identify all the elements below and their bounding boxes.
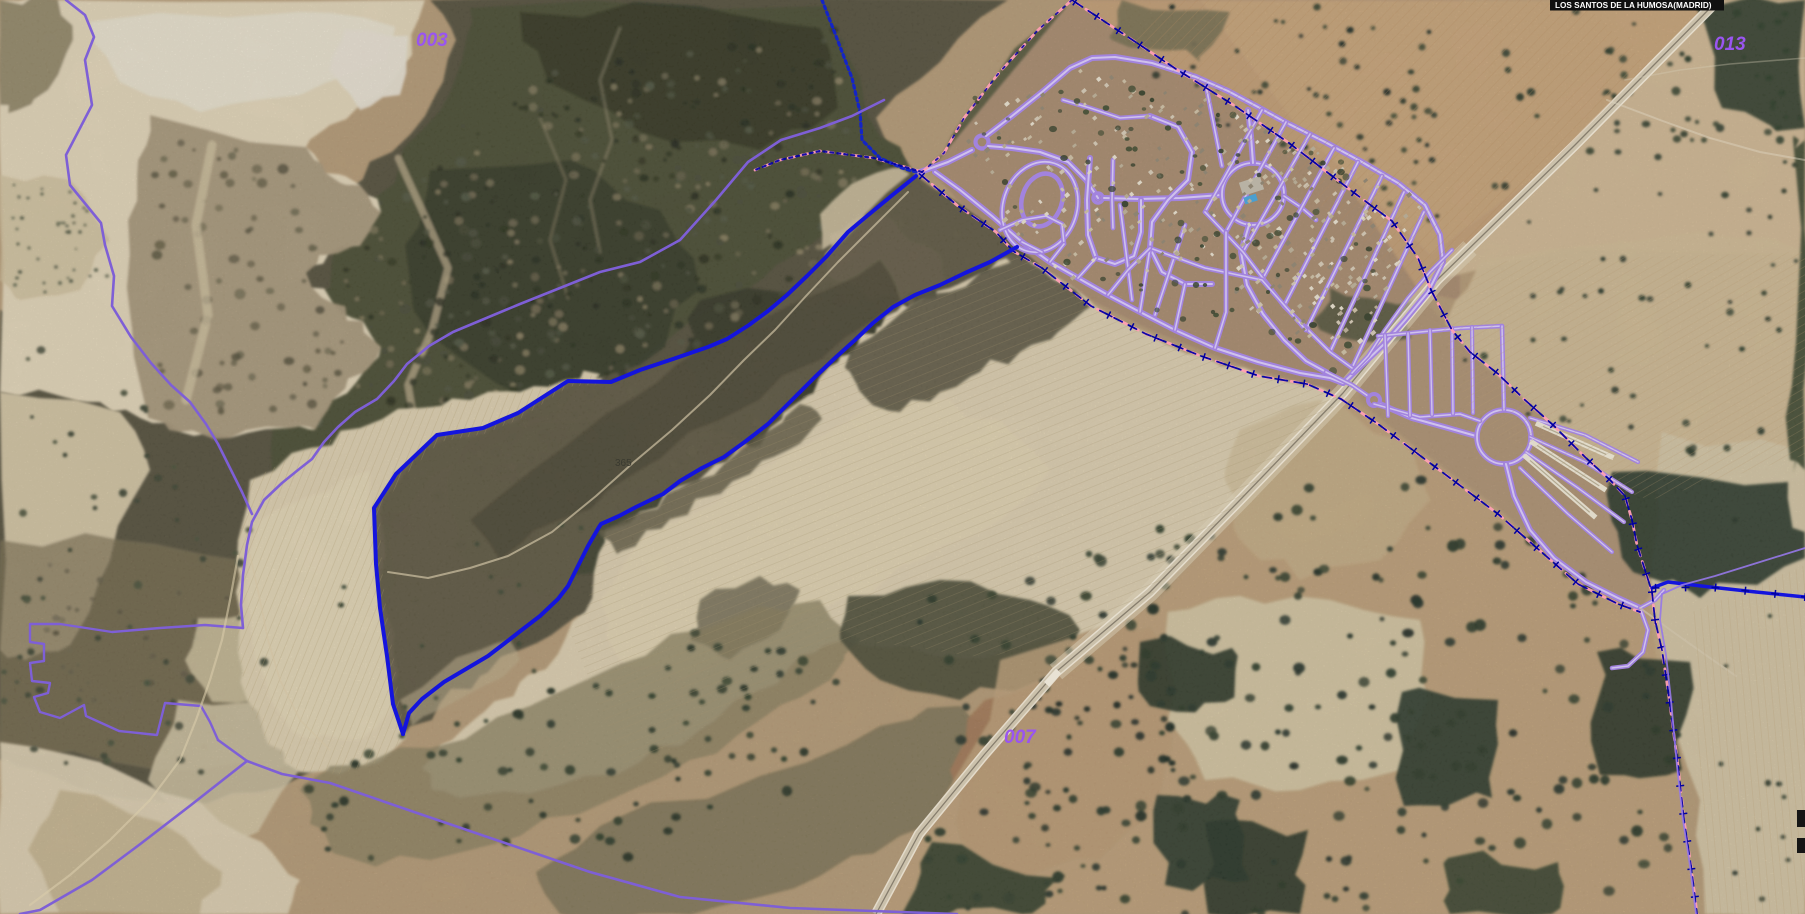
svg-text:007: 007 <box>1004 727 1037 748</box>
svg-text:013: 013 <box>1714 34 1746 55</box>
svg-text:003: 003 <box>416 30 448 51</box>
svg-text:LOS SANTOS DE LA HUMOSA(MADRID: LOS SANTOS DE LA HUMOSA(MADRID) <box>1555 1 1712 10</box>
svg-text:365: 365 <box>615 458 632 469</box>
